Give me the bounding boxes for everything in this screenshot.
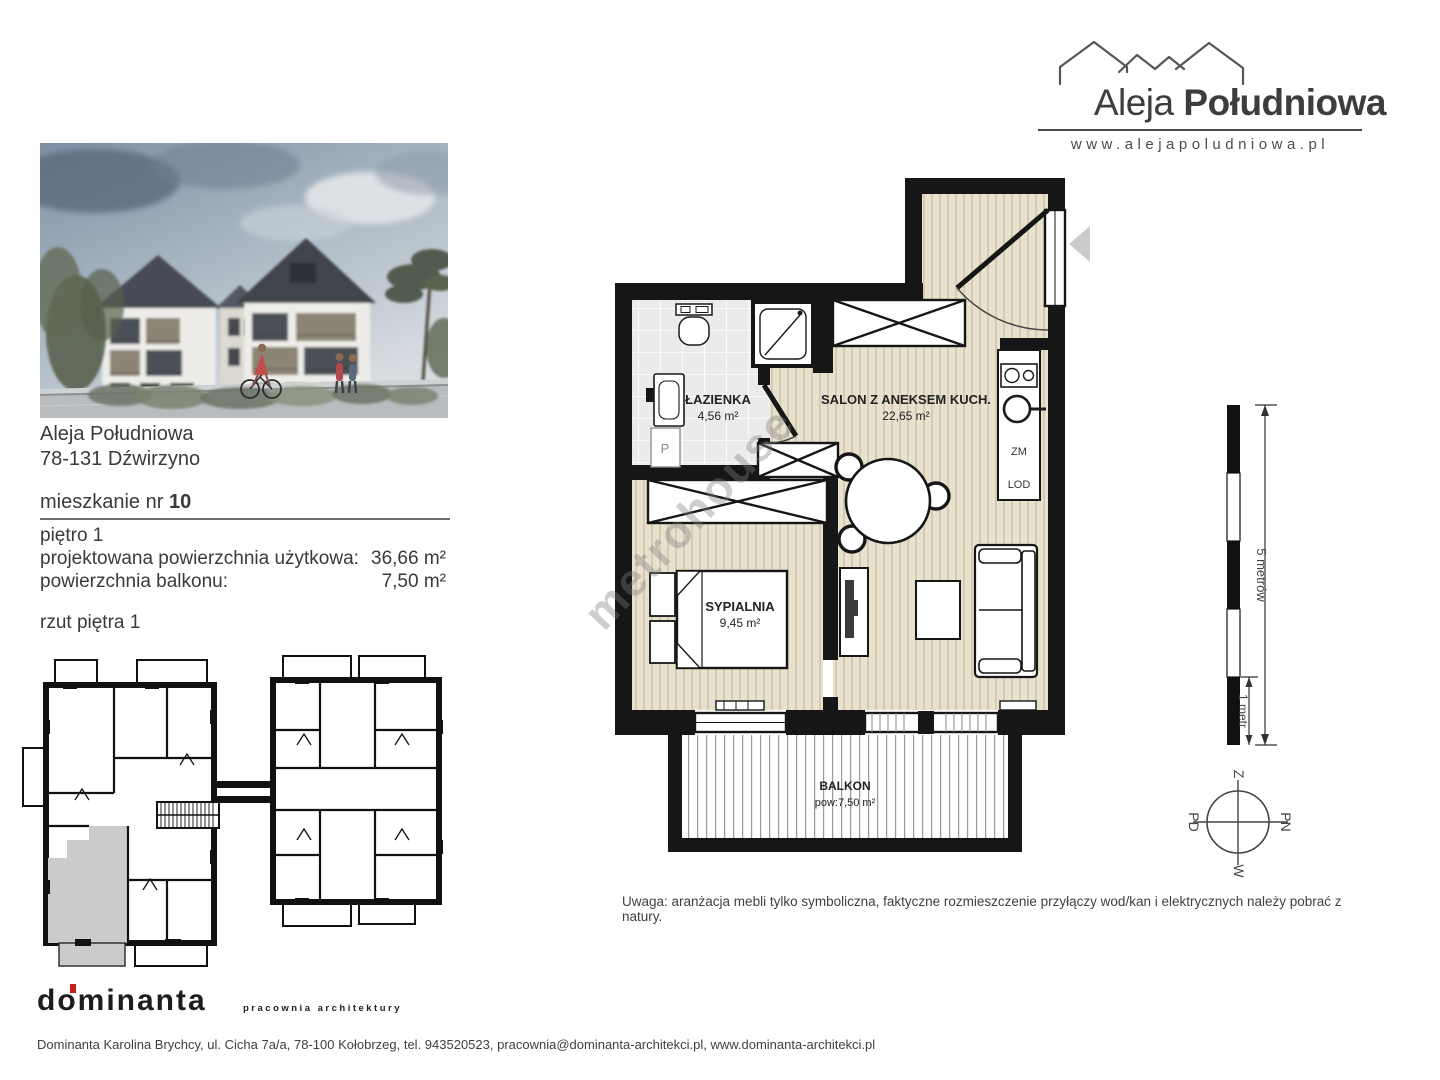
studio-logo-red-dot <box>70 984 76 993</box>
balcony-label: BALKON <box>819 779 870 793</box>
disclaimer-note: Uwaga: aranżacja mebli tylko symboliczna… <box>622 894 1382 924</box>
kitchen: ZM LOD <box>998 350 1046 500</box>
bedroom-area: 9,45 m² <box>720 616 761 630</box>
unit-number-line: mieszkanie nr 10 <box>40 491 191 514</box>
compass-bottom: W <box>1231 864 1247 878</box>
unit-number: 10 <box>169 491 191 513</box>
radiator <box>1000 701 1036 710</box>
plan-caption: rzut piętra 1 <box>40 612 140 634</box>
toilet <box>676 304 712 345</box>
brand-name-bold: Południowa <box>1183 82 1386 123</box>
usable-area-label: projektowana powierzchnia użytkowa: <box>40 548 359 570</box>
nightstand <box>650 621 675 663</box>
entry-window <box>1045 210 1065 306</box>
brand-name-regular: Aleja <box>1094 82 1174 123</box>
usable-area-row: projektowana powierzchnia użytkowa: 36,6… <box>40 548 446 570</box>
compass: Z PN W PD <box>1185 768 1295 878</box>
dining-table <box>846 459 930 543</box>
brand-rule <box>1038 129 1362 131</box>
radiator <box>716 701 764 710</box>
highlighted-balcony <box>59 943 125 966</box>
balcony-area-value: 7,50 m² <box>382 571 446 593</box>
fridge-label: LOD <box>1008 479 1031 491</box>
building-rendering <box>40 143 448 418</box>
compass-right: PN <box>1278 812 1294 831</box>
pantry-label: P <box>661 441 670 456</box>
balcony-area-label: powierzchnia balkonu: <box>40 571 228 593</box>
coffee-table <box>916 581 960 639</box>
compass-left: PD <box>1186 812 1202 831</box>
bathroom-area: 4,56 m² <box>698 409 739 423</box>
overview-plan <box>15 650 460 968</box>
usable-area-value: 36,66 m² <box>371 548 446 570</box>
unit-label: mieszkanie nr <box>40 491 163 513</box>
pantry-closet: P <box>651 428 680 467</box>
sofa <box>975 545 1037 677</box>
left-wing <box>23 660 219 966</box>
carousel-prev-arrow[interactable] <box>1069 226 1090 262</box>
development-name: Aleja Południowa <box>40 423 193 446</box>
brand-logo: Aleja Południowa <box>1040 82 1386 124</box>
tv-stand <box>840 568 868 656</box>
brand-website: www.alejapoludniowa.pl <box>1038 136 1362 153</box>
washing-machine <box>654 374 684 426</box>
living-room-label: SALON Z ANEKSEM KUCH. <box>821 392 991 407</box>
right-wing <box>273 656 443 926</box>
floor-label: piętro 1 <box>40 525 103 547</box>
balcony-outline <box>23 748 46 806</box>
kitchen-sink <box>1001 364 1037 387</box>
scale-full-label: 5 metrów <box>1254 548 1269 602</box>
footer-contact: Dominanta Karolina Brychcy, ul. Cicha 7a… <box>37 1037 875 1052</box>
balcony-area-text: pow:7,50 m² <box>815 797 876 809</box>
studio-tagline: pracownia architektury <box>243 1003 402 1014</box>
scale-unit-label: 1 metr <box>1236 694 1250 728</box>
roofline-icon <box>1056 38 1248 86</box>
development-address: 78-131 Dźwirzyno <box>40 448 200 471</box>
info-divider <box>40 518 450 520</box>
scale-bar: 5 metrów 1 metr <box>1205 395 1295 755</box>
watermark-top-fragment: metrohouse <box>517 0 788 2</box>
studio-logo: dominanta <box>37 984 207 1018</box>
balcony-area-row: powierzchnia balkonu: 7,50 m² <box>40 571 446 593</box>
bedroom-label: SYPIALNIA <box>705 599 775 614</box>
compass-top: Z <box>1231 770 1247 779</box>
stairs <box>157 802 219 828</box>
wardrobe <box>833 300 965 346</box>
bathroom-label: ŁAZIENKA <box>685 392 751 407</box>
dishwasher-label: ZM <box>1011 446 1027 458</box>
living-room-area: 22,65 m² <box>882 409 929 423</box>
